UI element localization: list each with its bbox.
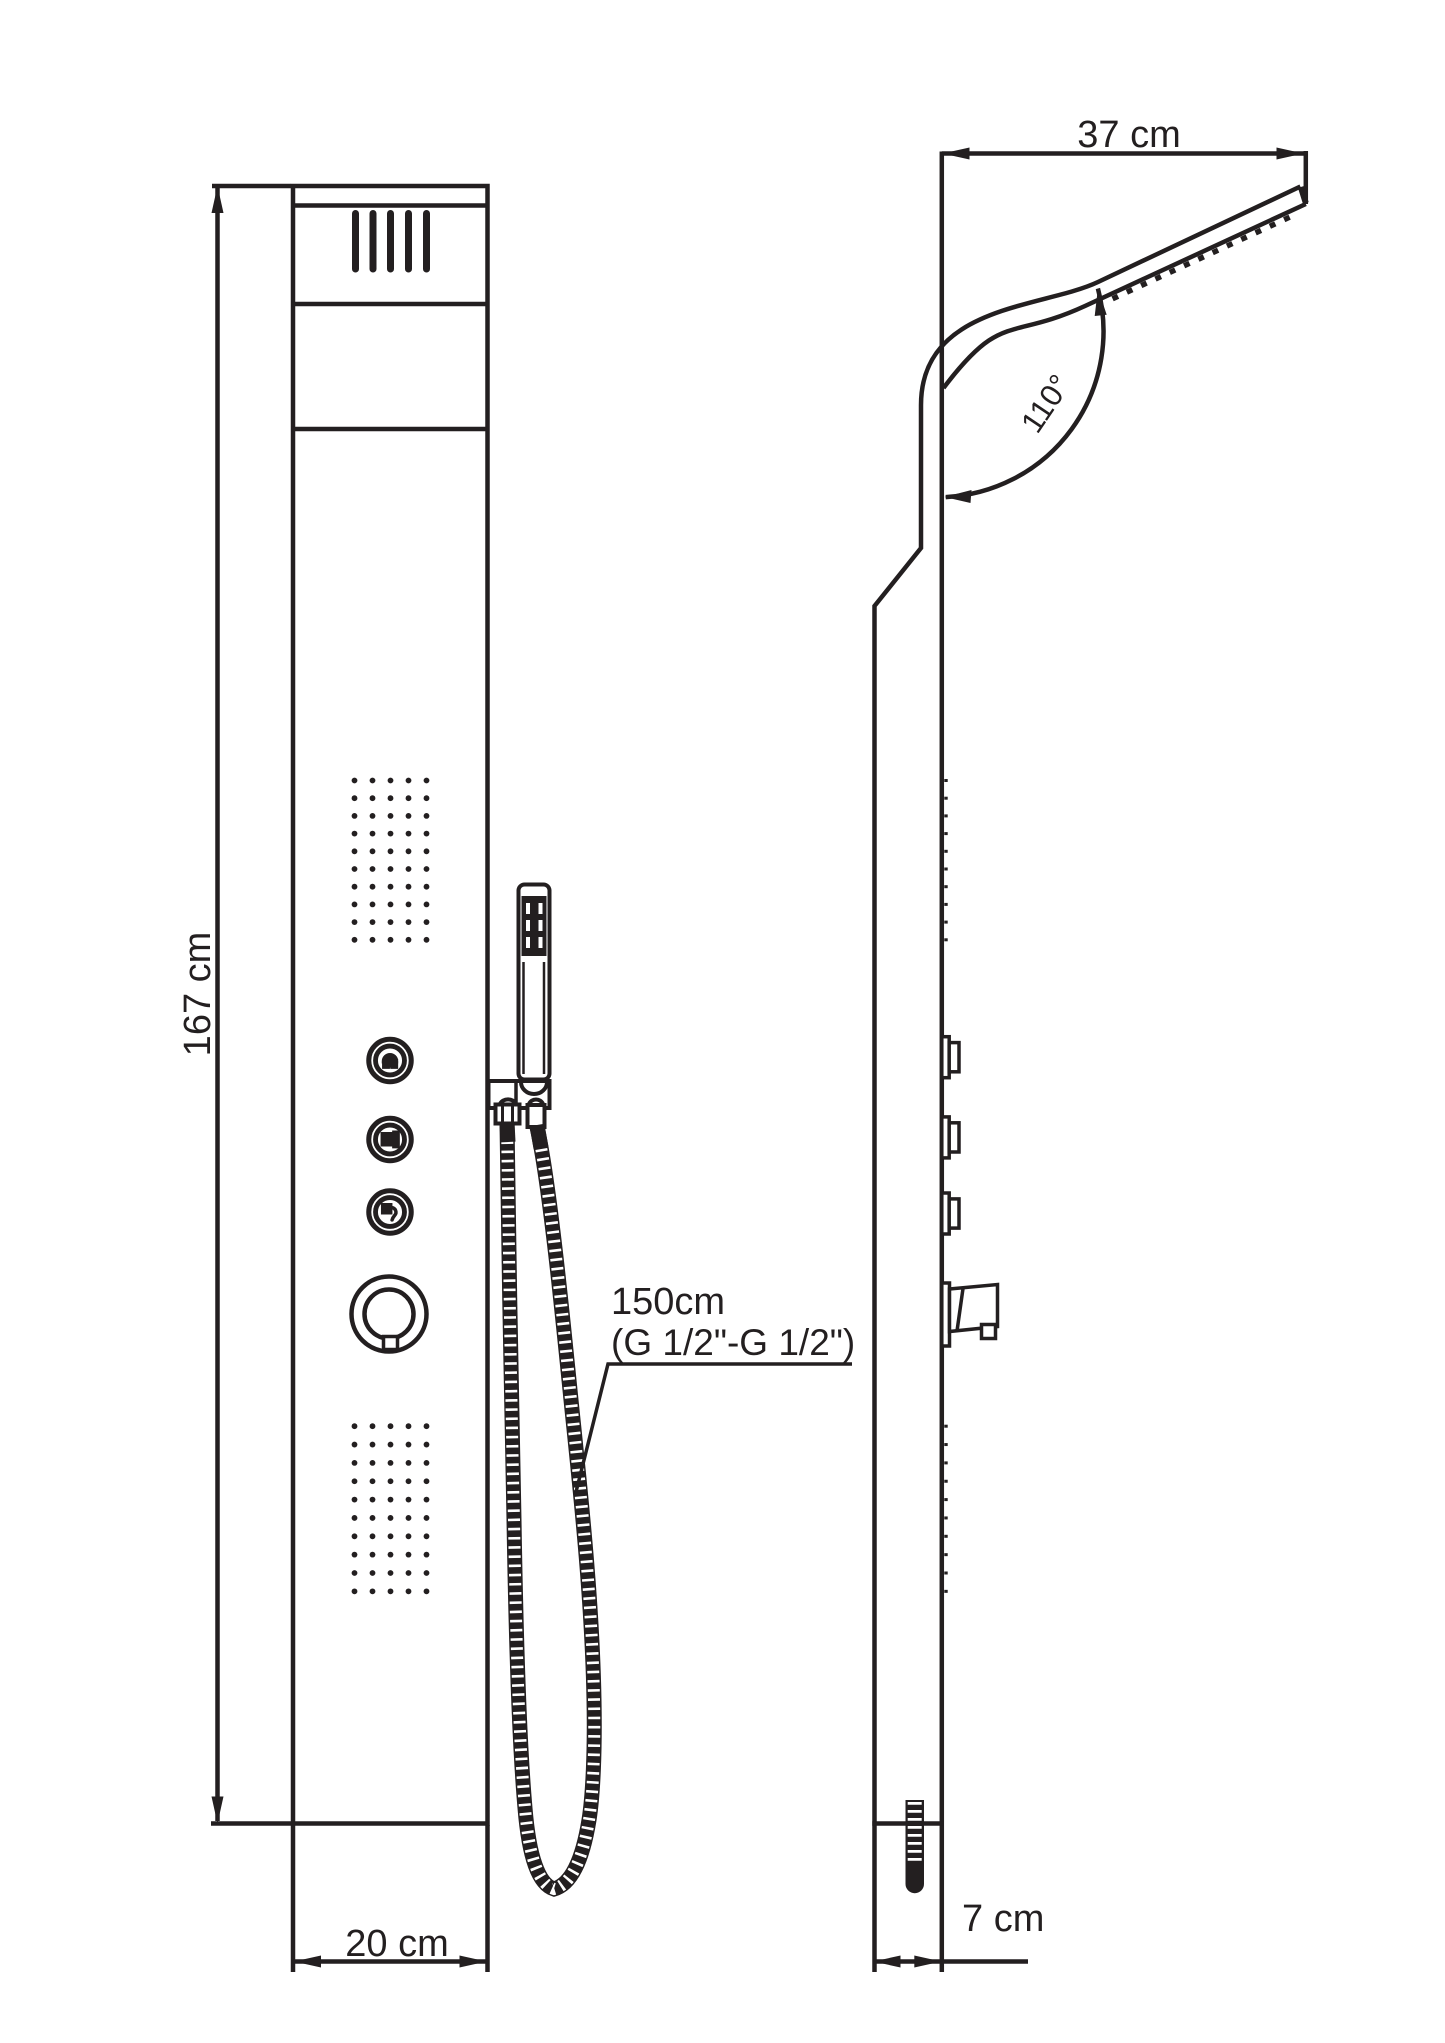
- svg-text:20 cm: 20 cm: [345, 1923, 448, 1965]
- svg-text:37 cm: 37 cm: [1077, 114, 1180, 156]
- svg-text:167 cm: 167 cm: [177, 932, 219, 1057]
- svg-text:7 cm: 7 cm: [962, 1898, 1044, 1940]
- svg-text:110°: 110°: [1014, 368, 1078, 439]
- svg-text:150cm: 150cm: [611, 1281, 725, 1323]
- svg-text:(G 1/2"-G 1/2"): (G 1/2"-G 1/2"): [611, 1322, 855, 1363]
